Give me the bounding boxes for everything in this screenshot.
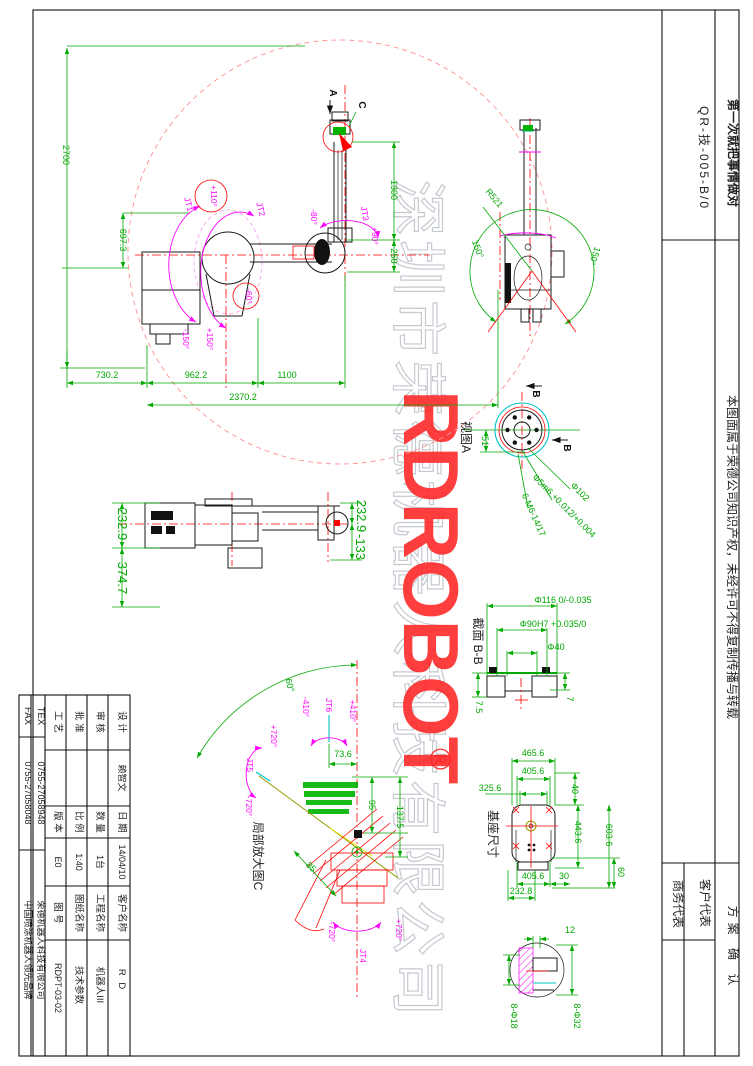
date-label: 日 期 bbox=[116, 811, 127, 833]
detail-c-circle bbox=[323, 122, 353, 152]
base-view: 465.6 405.6 325.6 40 443.6 603.6 405.6 3… bbox=[479, 748, 626, 901]
dim-73-6: 73.6 bbox=[334, 749, 352, 759]
jt4-max: +720° bbox=[394, 919, 404, 942]
dim-tapped-holes: 6-M6-14/17 bbox=[520, 492, 548, 538]
drawing-no-label: 图 号 bbox=[52, 902, 63, 924]
dim-730: 730.2 bbox=[96, 370, 119, 380]
dim-697: 697.3 bbox=[118, 229, 128, 252]
view-a-marker: A bbox=[327, 89, 338, 96]
view-a-label: 视图A bbox=[459, 421, 474, 453]
jt3-label: JT3 bbox=[359, 206, 371, 222]
jt2-max: +150° bbox=[205, 328, 215, 351]
dim-dia102: Φ102 bbox=[569, 480, 592, 503]
dim-232-right: 232.9 bbox=[354, 500, 369, 533]
dim-2700: 2700 bbox=[61, 145, 71, 165]
bolt-marks bbox=[513, 807, 552, 849]
version-value: E0 bbox=[53, 856, 63, 867]
section-bb: Φ116 0/-0.035 Φ90H7 +0.035/0 Φ40 7.5 7 截… bbox=[471, 595, 592, 713]
dim-12: 12 bbox=[565, 925, 575, 935]
design-label: 设 计 bbox=[116, 711, 128, 733]
dim-dia40: Φ40 bbox=[547, 642, 564, 652]
detail-c-label: 局部放大图C bbox=[251, 822, 266, 891]
qty-label: 数 量 bbox=[94, 811, 106, 833]
detail-c: 60° JT6 -410° +410° 73.6 JT5 +720° -720°… bbox=[197, 660, 408, 1000]
side-view: 232.9 374.7 232.9 -133 bbox=[112, 492, 369, 607]
qty-value: 1台 bbox=[95, 855, 106, 869]
drawing-sheet: 深圳市荣德机器人科技有限公司 RDROBOT ® QR-技-005-B/0 第一… bbox=[0, 0, 753, 1066]
dim-250: 250 bbox=[389, 248, 399, 263]
view-a: 51 B B Φ102 Φ5m6 +0.012/+0.004 6-M6-14/1… bbox=[459, 386, 598, 540]
dim-232-8: 232.8 bbox=[510, 886, 533, 896]
jt3-min: -80° bbox=[309, 209, 319, 225]
tex-value: 0755-27058948 bbox=[36, 761, 46, 824]
brand-slogan: 中国喷涂机器人领先品牌 bbox=[23, 900, 34, 999]
customer-rep-label: 客户代表 bbox=[698, 879, 713, 927]
angle-150-left: 150° bbox=[470, 239, 486, 260]
customer-label: 客户名称 bbox=[116, 894, 128, 933]
cad-drawing: 深圳市荣德机器人科技有限公司 RDROBOT ® QR-技-005-B/0 第一… bbox=[0, 0, 753, 1066]
approve-label: 批 准 bbox=[73, 711, 85, 733]
dim-374: 374.7 bbox=[115, 562, 130, 595]
jt2-min: -60° bbox=[244, 288, 254, 304]
wrist-housing bbox=[303, 782, 358, 814]
mount-detail: 12 8-Φ18 8-Φ32 bbox=[503, 925, 582, 1029]
jt4-min: -720° bbox=[327, 922, 337, 942]
dim-8-dia32: 8-Φ32 bbox=[572, 1003, 582, 1028]
dim-8-dia18: 8-Φ18 bbox=[509, 1003, 519, 1028]
copyright-notice: 本图面属于荣德公司知识产权，未经许可不得复制传播与转载 bbox=[725, 395, 740, 719]
wrist-arrow bbox=[339, 133, 352, 151]
dim-r521: R521 bbox=[484, 187, 505, 210]
scale-value: 1:40 bbox=[74, 853, 84, 871]
angle-150-right: 150° bbox=[587, 246, 603, 267]
dim-325: 325.6 bbox=[479, 783, 502, 793]
title-block: 设 计 赖智文 日 期 14/04/10 客户名称 R D 审 核 数 量 1台… bbox=[19, 695, 130, 1056]
slogan: 第一次就把事情做对 bbox=[726, 99, 741, 207]
fax-value: 0755-27058048 bbox=[23, 761, 33, 824]
drawing-no-value: RDPT-03-02 bbox=[53, 963, 63, 1013]
dim-405-bottom: 405.6 bbox=[522, 871, 545, 881]
tex-label: TEX bbox=[35, 707, 46, 726]
detail-c-marker: C bbox=[356, 101, 367, 108]
dim-465: 465.6 bbox=[522, 748, 545, 758]
jt6-max: +410° bbox=[348, 700, 358, 723]
dim-1300: 1300 bbox=[389, 180, 399, 200]
dim-7-5: 7.5 bbox=[474, 701, 484, 714]
company-name: 荣德机器人科技有限公司 bbox=[36, 900, 47, 999]
section-mark-b-top: B bbox=[530, 390, 541, 397]
watermark: 深圳市荣德机器人科技有限公司 RDROBOT ® bbox=[386, 180, 475, 1020]
rotation-range-arc bbox=[470, 210, 594, 324]
approval-title: 方案 确 认 bbox=[726, 906, 741, 991]
dim-60deg: 60° bbox=[283, 677, 296, 693]
jt2-label: JT2 bbox=[254, 201, 267, 218]
doc-number: QR-技-005-B/0 bbox=[697, 106, 711, 210]
dim-2370: 2370.2 bbox=[229, 392, 257, 402]
shoulder-joint bbox=[314, 239, 330, 265]
date-value: 14/04/10 bbox=[117, 844, 127, 879]
business-rep-label: 商务代表 bbox=[671, 880, 686, 928]
dim-443: 443.6 bbox=[573, 821, 583, 844]
customer-value: R D bbox=[116, 969, 127, 991]
dim-30: 30 bbox=[559, 871, 569, 881]
jt1-min: -150° bbox=[181, 329, 191, 349]
dim-232-left: 232.9 bbox=[115, 508, 130, 541]
dim-dia90: Φ90H7 +0.035/0 bbox=[520, 619, 586, 629]
design-value: 赖智文 bbox=[117, 764, 128, 791]
check-label: 审 核 bbox=[94, 711, 106, 733]
dim-962: 962.2 bbox=[185, 370, 208, 380]
jt6-min: -410° bbox=[301, 697, 311, 717]
top-view: R521 150° 150° bbox=[470, 118, 603, 338]
jt1-max: +110° bbox=[209, 185, 219, 207]
scale-label: 比 例 bbox=[73, 811, 85, 833]
dim-137-5: 137.5 bbox=[395, 806, 405, 829]
jt5-max: +720° bbox=[269, 725, 279, 748]
dim-60: 60 bbox=[616, 867, 626, 877]
arm-red-box bbox=[293, 246, 314, 259]
dim-40: 40 bbox=[570, 784, 580, 794]
dim-405-top: 405.6 bbox=[522, 766, 545, 776]
project-value: 机器人III bbox=[94, 967, 106, 1003]
dim-dia116: Φ116 0/-0.035 bbox=[534, 595, 591, 605]
base-view-label: 基座尺寸 bbox=[486, 810, 501, 858]
section-mark-b-bottom: B bbox=[561, 444, 572, 451]
registered-mark: ® bbox=[423, 748, 456, 770]
jt6-label: JT6 bbox=[324, 698, 334, 712]
drawing-name-value: 技术参数 bbox=[73, 966, 85, 1005]
project-label: 工程名称 bbox=[94, 894, 106, 933]
jt5-min: -720° bbox=[244, 796, 254, 816]
dim-603: 603.6 bbox=[604, 824, 614, 847]
jt1-label: JT1 bbox=[182, 196, 195, 213]
jt4-label: JT4 bbox=[358, 949, 368, 963]
process-label: 工 艺 bbox=[52, 711, 63, 733]
dim-95: 95 bbox=[367, 800, 377, 810]
border bbox=[33, 10, 739, 1056]
drawing-name-label: 图纸名称 bbox=[73, 894, 85, 933]
dim-133: -133 bbox=[353, 534, 368, 560]
dim-1100: 1100 bbox=[277, 370, 296, 380]
dim-51: 51 bbox=[480, 436, 490, 446]
version-label: 版 本 bbox=[52, 811, 64, 833]
fax-label: FAX bbox=[22, 707, 33, 726]
section-bb-label: 截面 B-B bbox=[471, 617, 485, 664]
jt3-max: +90° bbox=[370, 227, 380, 245]
dim-7: 7 bbox=[565, 696, 575, 701]
